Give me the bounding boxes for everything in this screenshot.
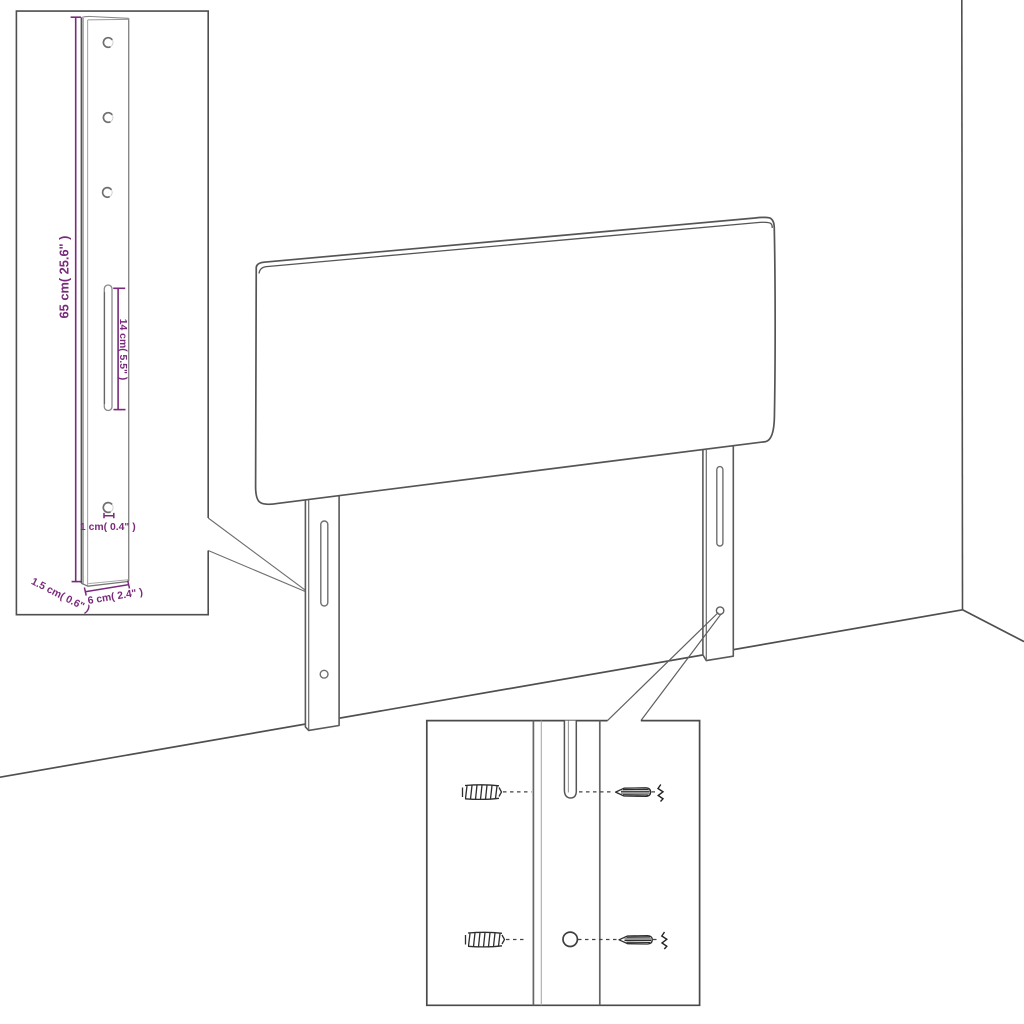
svg-text:1.5 cm( 0.6" ): 1.5 cm( 0.6" ): [29, 576, 91, 615]
svg-text:14 cm( 5.5" ): 14 cm( 5.5" ): [117, 319, 128, 381]
svg-text:1 cm( 0.4" ): 1 cm( 0.4" ): [80, 522, 136, 533]
svg-text:65 cm( 25.6" ): 65 cm( 25.6" ): [57, 236, 72, 319]
